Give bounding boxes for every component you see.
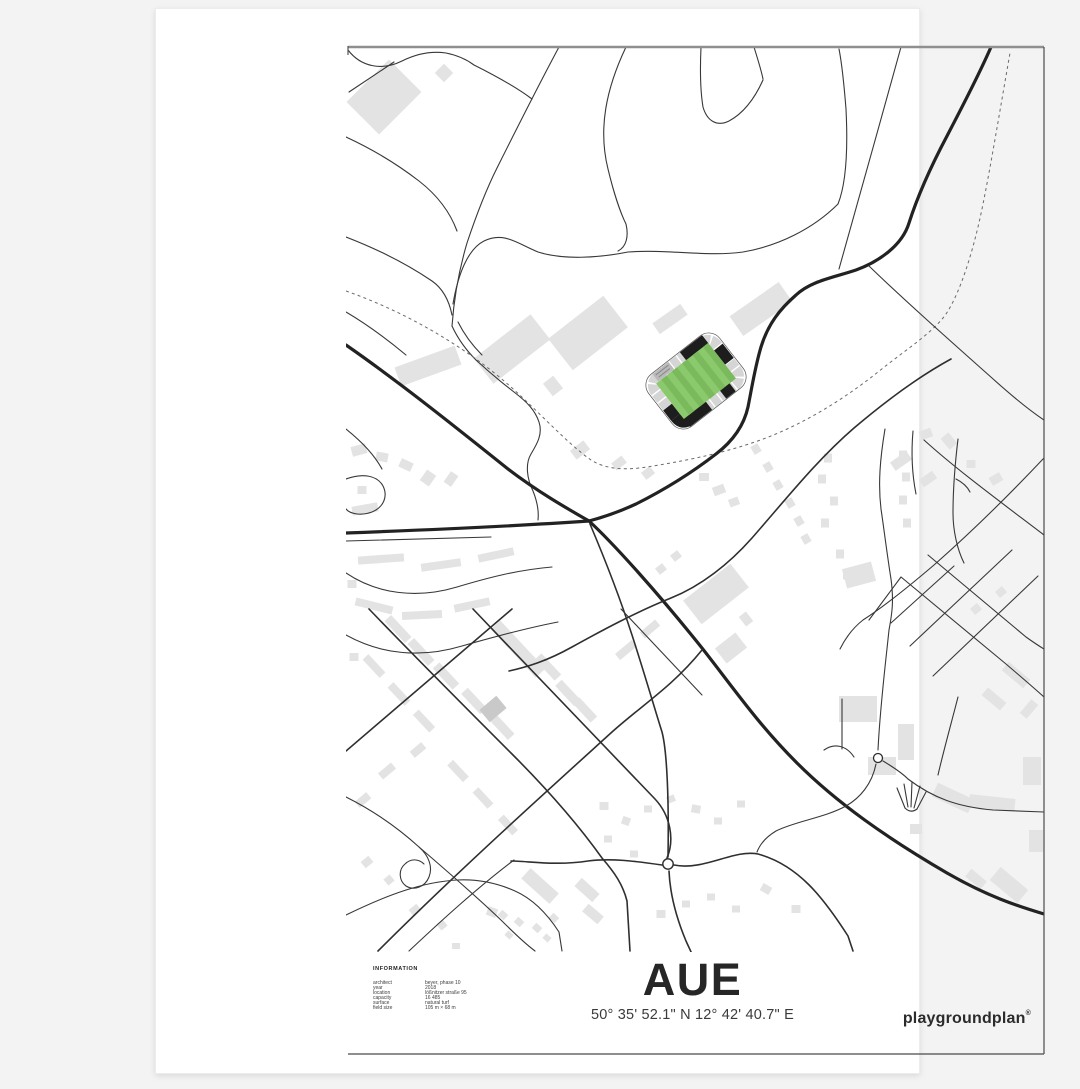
hill-contour-bottom: [453, 49, 847, 304]
street-map: [156, 9, 1080, 1089]
hill-contour-left: [604, 47, 627, 251]
buildings-layer: [347, 60, 1043, 949]
roundabout-icon: [663, 859, 673, 869]
main-road-west: [346, 345, 589, 521]
main-road: [589, 47, 991, 521]
coordinates: 50° 35' 52.1" N 12° 42' 40.7" E: [542, 1007, 843, 1023]
poster: INFORMATION architectbeyer, phase 10 yea…: [155, 8, 920, 1074]
information-block: INFORMATION architectbeyer, phase 10 yea…: [373, 966, 467, 1012]
poster-title: AUE: [542, 957, 843, 1003]
roads-layer: [346, 47, 1044, 954]
brand-name: playgroundplan: [903, 1010, 1026, 1027]
main-road-horizontal: [346, 521, 589, 533]
roundabout-icon: [874, 754, 883, 763]
fan-structure: [897, 782, 926, 811]
page: { "poster": { "title": "AUE", "coordinat…: [0, 0, 1080, 1080]
brand-logo: playgroundplan®: [820, 1010, 1031, 1028]
stadium: [640, 327, 752, 434]
map-frame: [348, 46, 1044, 1054]
info-row-field-size: field size105 m × 68 m: [373, 1006, 467, 1011]
registered-mark: ®: [1026, 1010, 1031, 1017]
title-block: AUE 50° 35' 52.1" N 12° 42' 40.7" E: [542, 957, 843, 1023]
information-rows: architectbeyer, phase 10 year2018 locati…: [373, 981, 467, 1012]
information-heading: INFORMATION: [373, 966, 467, 972]
